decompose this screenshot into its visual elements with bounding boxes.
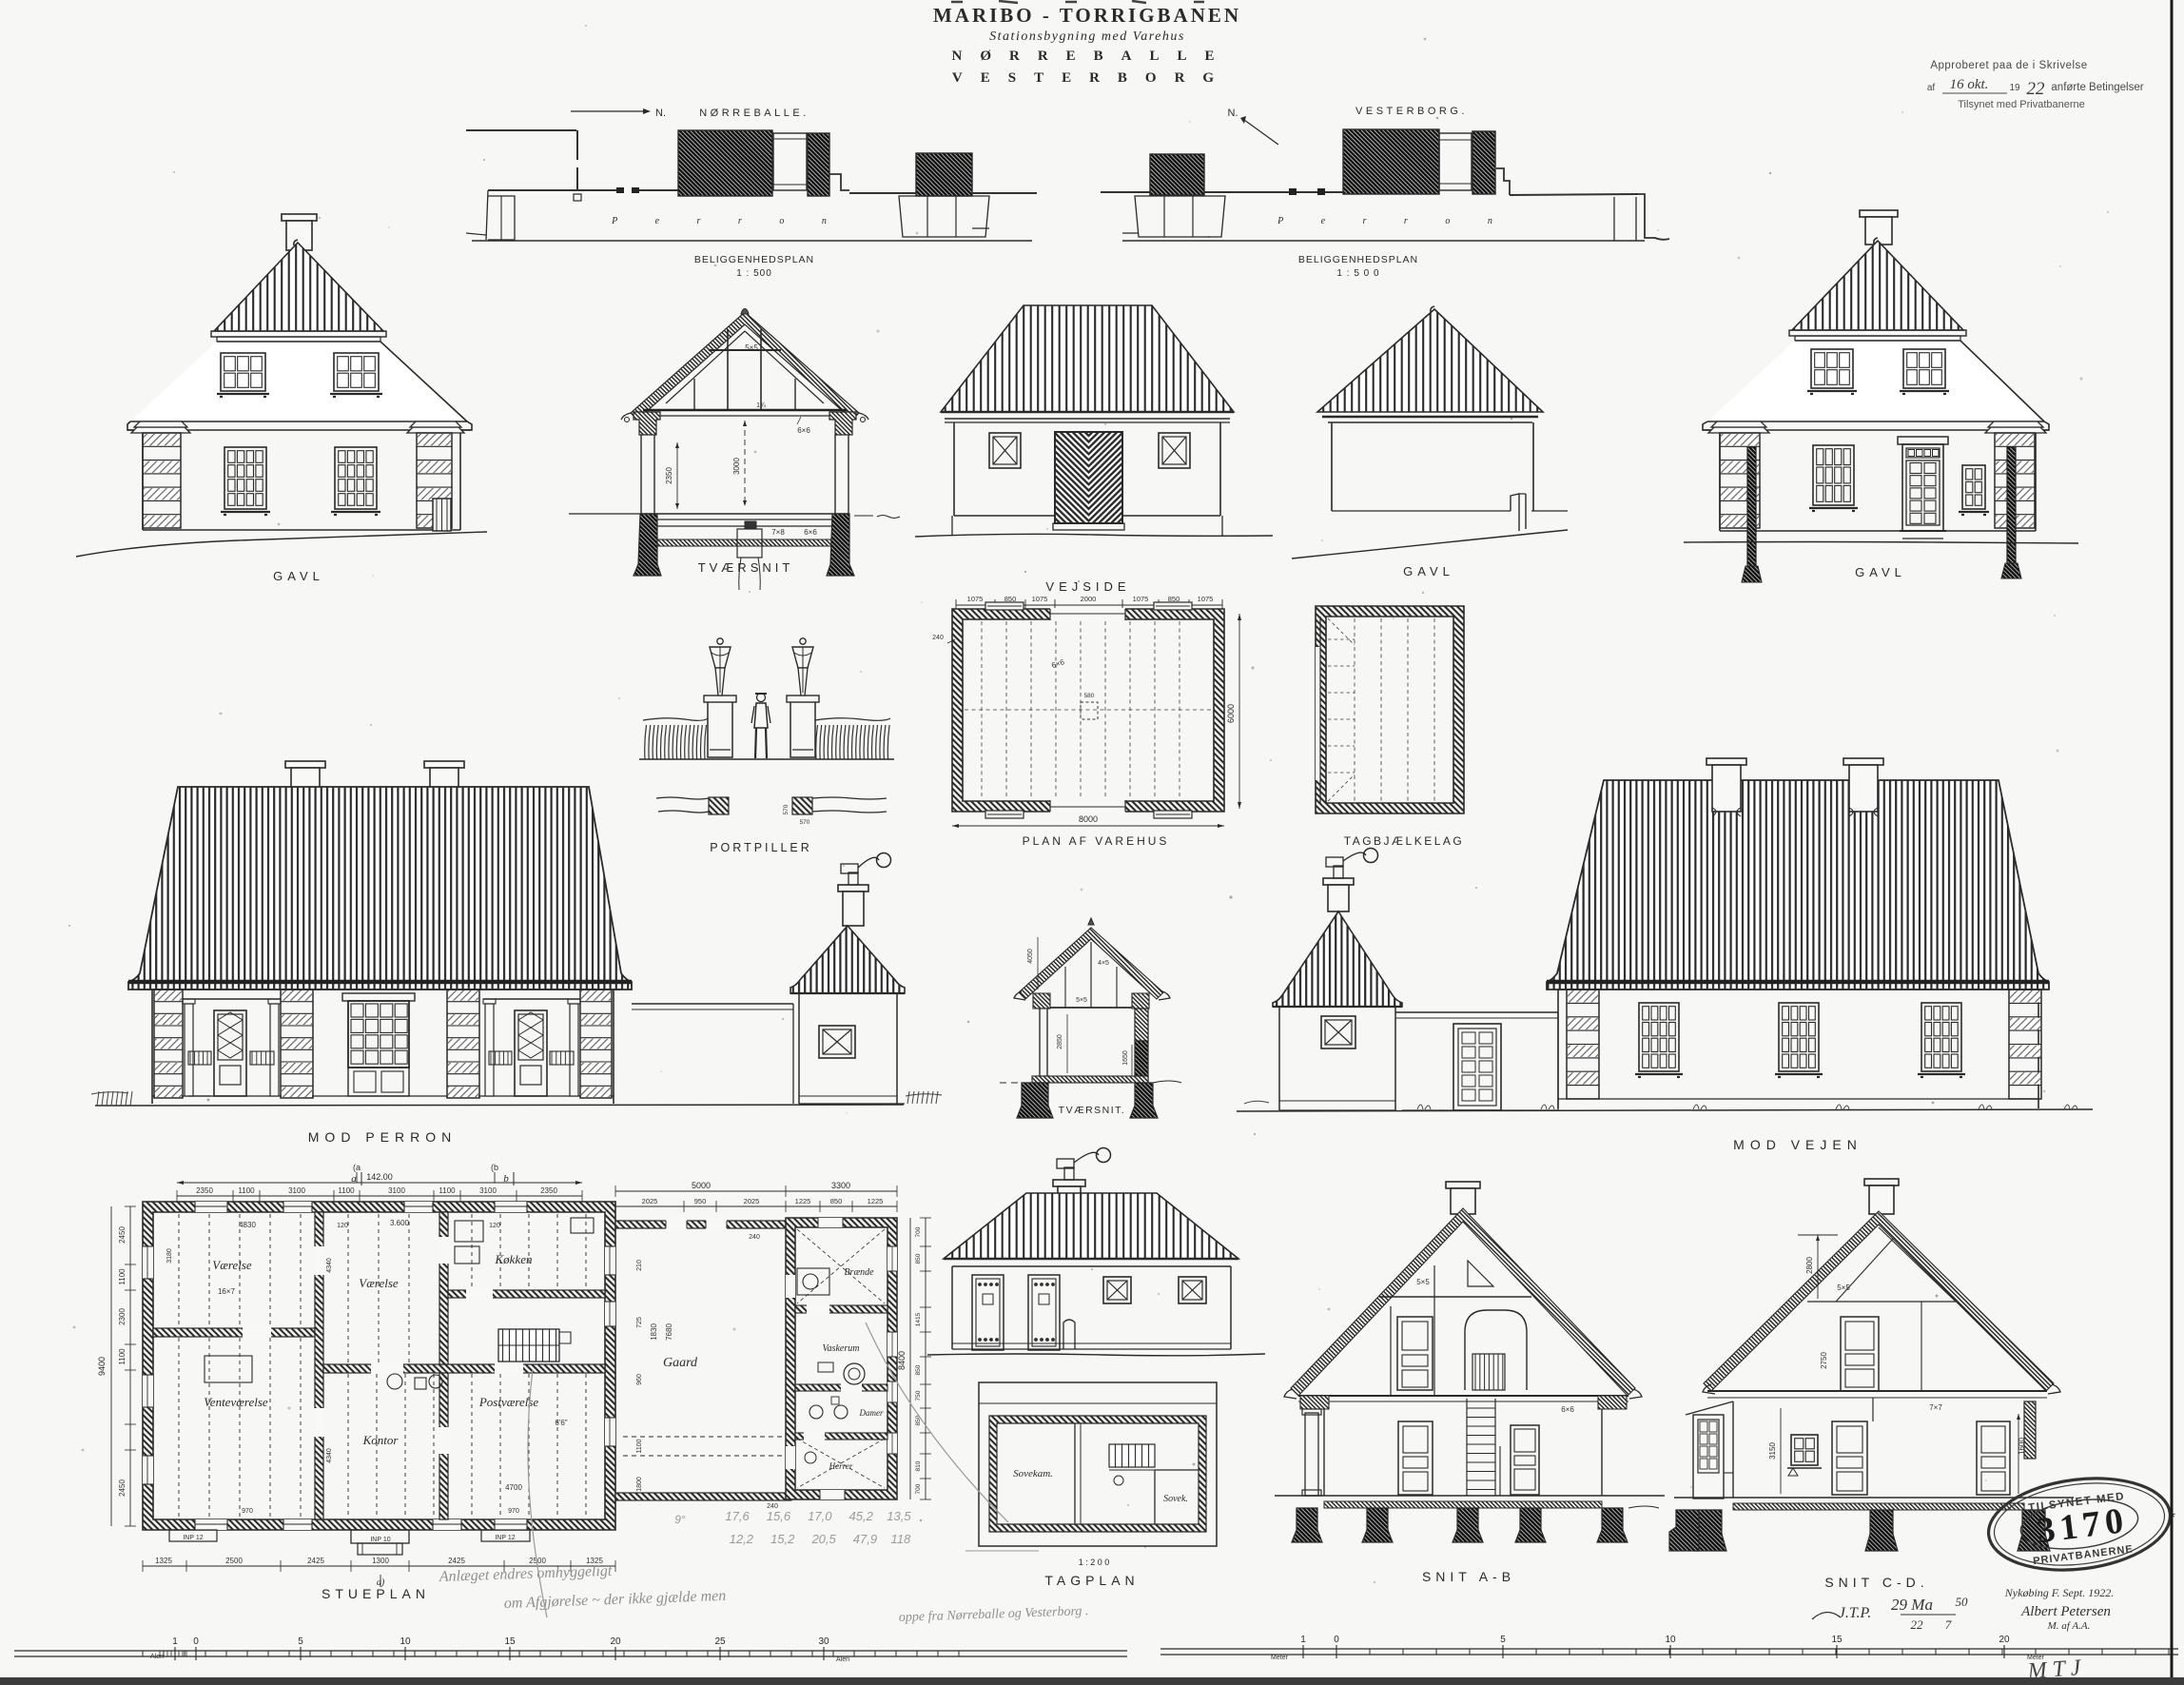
svg-text:5: 5 [298,1636,303,1647]
svg-text:1100: 1100 [636,1439,643,1453]
svg-text:Køkken: Køkken [495,1252,533,1266]
svg-text:Gaard: Gaard [663,1356,698,1370]
svg-text:5: 5 [1500,1635,1506,1645]
svg-text:9400: 9400 [97,1357,107,1376]
svg-text:570: 570 [783,804,790,814]
svg-text:GAVL: GAVL [1855,565,1906,579]
svg-text:TVÆRSNIT.: TVÆRSNIT. [1059,1105,1126,1116]
svg-text:3300: 3300 [831,1181,850,1190]
svg-text:700: 700 [915,1483,922,1494]
svg-text:Kontor: Kontor [362,1433,400,1447]
svg-text:1075: 1075 [1133,595,1149,603]
svg-text:1225: 1225 [795,1197,811,1205]
svg-text:N.: N. [655,108,666,119]
svg-text:20: 20 [610,1636,621,1647]
svg-text:GAVL: GAVL [273,569,324,583]
svg-text:22: 22 [1911,1617,1924,1632]
svg-text:22: 22 [2027,79,2046,99]
svg-text:6'6": 6'6" [555,1419,567,1427]
svg-text:8000: 8000 [1079,814,1098,824]
svg-text:15: 15 [1831,1635,1843,1645]
svg-text:1 : 500: 1 : 500 [736,268,772,279]
svg-text:3100: 3100 [288,1186,305,1195]
svg-text:Værelse: Værelse [212,1258,252,1272]
svg-text:MOD VEJEN: MOD VEJEN [1733,1137,1862,1152]
svg-text:970: 970 [508,1508,519,1515]
svg-text:STUEPLAN: STUEPLAN [322,1586,430,1601]
svg-text:2300: 2300 [118,1308,127,1325]
svg-text:970: 970 [242,1508,253,1515]
svg-text:120: 120 [489,1223,500,1229]
svg-text:17,6 15,6 17,0 45,: 17,6 15,6 17,0 45,2 13,5 [725,1509,911,1523]
svg-text:1830: 1830 [650,1323,658,1341]
svg-text:2800: 2800 [1805,1257,1814,1274]
svg-text:9°: 9° [674,1513,686,1526]
svg-text:Meter: Meter [1271,1655,1289,1661]
svg-text:2750: 2750 [1820,1352,1828,1369]
svg-text:16×7: 16×7 [218,1287,236,1296]
svg-text:25: 25 [714,1636,726,1647]
svg-text:2025: 2025 [744,1197,760,1205]
svg-text:1: 1 [1300,1635,1306,1645]
svg-text:29 Ma: 29 Ma [1891,1596,1933,1614]
svg-text:3180: 3180 [166,1248,173,1264]
svg-text:Damer: Damer [859,1408,884,1418]
svg-text:810: 810 [915,1460,922,1471]
svg-text:4×5: 4×5 [1098,960,1109,967]
svg-text:10: 10 [400,1636,411,1647]
svg-text:5×5: 5×5 [1837,1283,1850,1292]
svg-text:0: 0 [1334,1635,1339,1645]
svg-text:240: 240 [749,1234,760,1241]
svg-text:1800: 1800 [636,1477,643,1492]
svg-text:142.00: 142.00 [366,1172,393,1182]
svg-text:3100: 3100 [388,1186,405,1195]
svg-text:1075: 1075 [1032,595,1048,603]
svg-text:J.T.P.: J.T.P. [1839,1605,1872,1621]
svg-text:7: 7 [1945,1617,1952,1632]
svg-text:725: 725 [636,1317,643,1328]
svg-text:GAVL: GAVL [1403,564,1454,578]
svg-text:850: 850 [915,1415,922,1425]
svg-text:850: 850 [830,1197,843,1205]
svg-text:Sovekam.: Sovekam. [1013,1468,1053,1479]
svg-text:2500: 2500 [529,1557,546,1565]
svg-text:1415: 1415 [915,1312,922,1326]
svg-text:570: 570 [800,819,810,826]
svg-text:Nykøbing F. Sept. 1922.: Nykøbing F. Sept. 1922. [2004,1586,2114,1599]
svg-text:1 : 5 0 0: 1 : 5 0 0 [1336,268,1379,279]
svg-text:4340: 4340 [326,1258,333,1273]
svg-text:Venteværelse: Venteværelse [204,1395,268,1409]
svg-text:Stationsbygning med Varehus: Stationsbygning med Varehus [989,29,1185,44]
svg-text:1075: 1075 [1198,595,1214,603]
svg-text:3150: 3150 [1768,1442,1777,1460]
svg-text:5×5: 5×5 [1416,1278,1430,1286]
svg-text:960: 960 [636,1374,643,1385]
svg-text:a): a) [377,1577,385,1588]
svg-text:7×8: 7×8 [771,528,785,537]
svg-text:2425: 2425 [448,1557,465,1565]
svg-text:2500: 2500 [225,1557,243,1565]
svg-text:1100: 1100 [338,1186,355,1195]
svg-text:30: 30 [818,1636,829,1647]
svg-text:16 okt.: 16 okt. [1950,77,1989,92]
svg-text:(a: (a [353,1163,361,1172]
svg-text:af: af [1927,83,1936,93]
svg-text:VEJSIDE: VEJSIDE [1045,579,1130,594]
svg-text:950: 950 [694,1197,707,1205]
svg-text:2025: 2025 [642,1197,658,1205]
svg-text:750: 750 [915,1390,922,1401]
svg-text:2350: 2350 [196,1186,213,1195]
svg-text:240: 240 [932,635,944,641]
svg-text:NØRREBALLE.: NØRREBALLE. [699,108,809,119]
svg-text:INP 12: INP 12 [495,1535,515,1541]
svg-text:Alen: Alen [836,1656,849,1663]
svg-text:3000: 3000 [732,458,741,475]
svg-text:Albert Petersen: Albert Petersen [2020,1604,2111,1619]
svg-text:0: 0 [193,1636,199,1647]
svg-text:4830: 4830 [239,1221,256,1229]
svg-text:19: 19 [2009,83,2020,93]
svg-text:2350: 2350 [665,467,673,484]
svg-text:NØRREBALLE: NØRREBALLE [951,49,1232,64]
svg-text:BELIGGENHEDSPLAN: BELIGGENHEDSPLAN [1298,254,1418,265]
svg-text:850: 850 [915,1253,922,1264]
svg-text:(b: (b [491,1163,498,1172]
svg-text:MARIBO - TORRIGBANEN: MARIBO - TORRIGBANEN [933,4,1241,27]
svg-text:1100: 1100 [238,1186,255,1195]
svg-text:4700: 4700 [505,1483,522,1492]
svg-text:1100: 1100 [118,1268,127,1285]
svg-text:VESTERBORG.: VESTERBORG. [1355,106,1468,117]
svg-text:Alen: Alen [150,1654,164,1660]
svg-text:5×5: 5×5 [1076,997,1087,1004]
svg-text:7×7: 7×7 [1929,1403,1942,1412]
svg-text:Tilsynet med Privatbanerne: Tilsynet med Privatbanerne [1958,99,2085,110]
svg-text:1650: 1650 [1122,1050,1129,1066]
svg-text:6×6: 6×6 [1561,1405,1574,1414]
svg-text:M. af A.A.: M. af A.A. [2047,1620,2091,1632]
svg-text:Sovek.: Sovek. [1163,1494,1188,1504]
svg-text:3100: 3100 [479,1186,497,1195]
svg-text:210: 210 [636,1260,643,1271]
svg-text:VESTERBORG: VESTERBORG [952,70,1232,86]
svg-text:2850: 2850 [1057,1034,1063,1049]
svg-text:1: 1 [172,1636,178,1647]
svg-text:120: 120 [337,1223,348,1229]
svg-text:Værelse: Værelse [359,1276,399,1290]
svg-text:2450: 2450 [118,1226,127,1244]
svg-text:1075: 1075 [967,595,984,603]
svg-text:PLAN AF VAREHUS: PLAN AF VAREHUS [1023,834,1170,848]
svg-text:P e r r o n: P e r r o n [611,216,834,226]
svg-text:1325: 1325 [155,1557,172,1565]
svg-text:6×6: 6×6 [804,528,817,537]
svg-text:BELIGGENHEDSPLAN: BELIGGENHEDSPLAN [694,254,814,265]
svg-text:1300: 1300 [372,1557,389,1565]
svg-text:PORTPILLER: PORTPILLER [710,841,812,854]
svg-text:TAGBJÆLKELAG: TAGBJÆLKELAG [1344,834,1464,848]
svg-text:5×5: 5×5 [745,343,758,352]
svg-text:50: 50 [1956,1595,1969,1609]
svg-text:anførte Betingelser: anførte Betingelser [2051,82,2143,93]
svg-text:8400: 8400 [897,1351,907,1370]
svg-text:580: 580 [1084,693,1095,699]
svg-text:700: 700 [915,1226,922,1237]
svg-text:20: 20 [1999,1635,2010,1645]
svg-text:1100: 1100 [439,1186,456,1195]
svg-text:INP 10: INP 10 [370,1537,390,1543]
svg-text:6000: 6000 [1226,704,1236,723]
svg-text:P e r r o n: P e r r o n [1277,216,1500,226]
svg-text:850: 850 [915,1364,922,1375]
svg-text:7680: 7680 [665,1323,673,1341]
svg-text:TVÆRSNIT: TVÆRSNIT [698,560,794,575]
svg-text:1100: 1100 [118,1348,127,1365]
svg-text:Vaskerum: Vaskerum [823,1343,860,1354]
svg-text:SNIT A-B: SNIT A-B [1422,1569,1515,1584]
svg-text:SNIT C-D.: SNIT C-D. [1824,1575,1928,1590]
svg-text:3.600: 3.600 [390,1219,410,1227]
svg-text:6×6: 6×6 [797,426,810,435]
svg-text:N.: N. [1228,108,1238,119]
svg-text:TAGPLAN: TAGPLAN [1044,1573,1139,1588]
svg-text:1¾: 1¾ [756,402,766,409]
svg-text:12,2 15,2 20,5 47,: 12,2 15,2 20,5 47,9 118 [730,1532,911,1546]
svg-text:MOD PERRON: MOD PERRON [308,1129,457,1145]
svg-text:2450: 2450 [118,1479,127,1497]
svg-text:1225: 1225 [868,1197,884,1205]
svg-text:4340: 4340 [326,1448,333,1463]
svg-text:Approberet paa de i Skrivelse: Approberet paa de i Skrivelse [1930,60,2087,71]
svg-text:2000: 2000 [1081,595,1097,603]
svg-text:15: 15 [504,1636,516,1647]
svg-text:INP 12: INP 12 [183,1535,203,1541]
svg-text:2425: 2425 [307,1557,324,1565]
svg-text:1 : 2 0 0: 1 : 2 0 0 [1079,1558,1110,1567]
svg-text:5000: 5000 [692,1181,711,1190]
svg-text:10: 10 [1665,1635,1676,1645]
svg-text:2350: 2350 [540,1186,557,1195]
svg-text:4050: 4050 [1027,949,1034,964]
